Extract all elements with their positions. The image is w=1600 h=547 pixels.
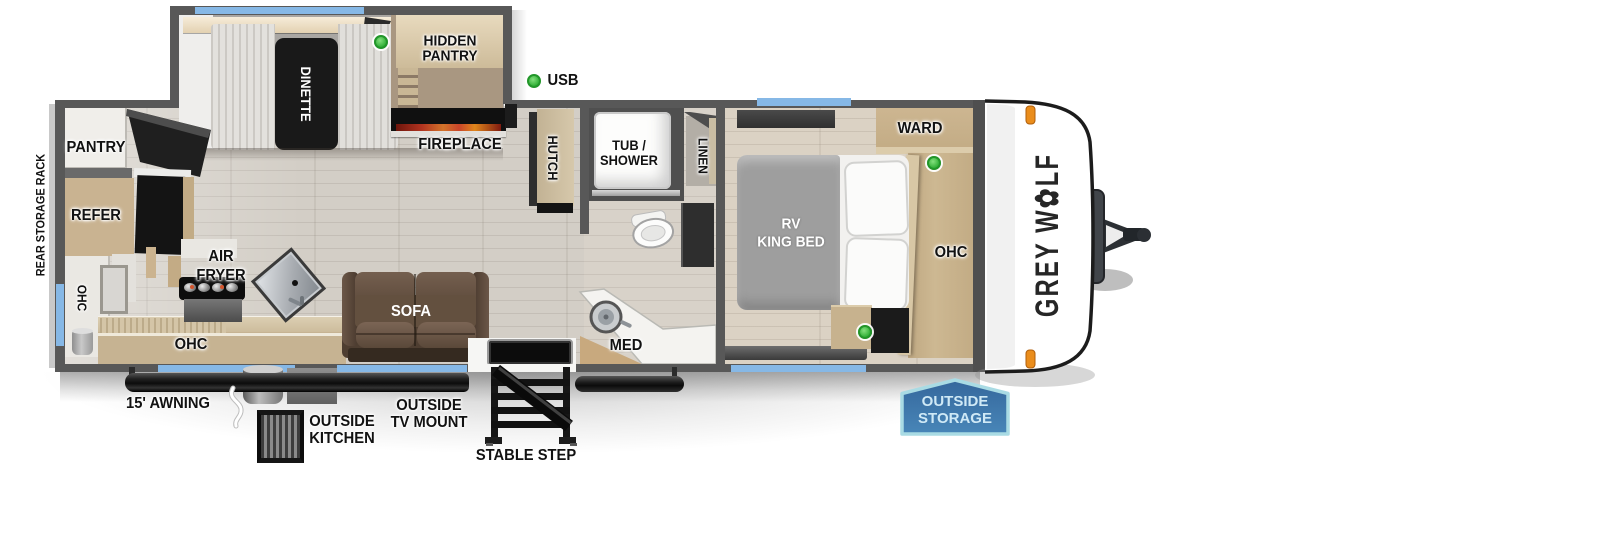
svg-text:OUTSIDE: OUTSIDE [922,393,989,410]
svg-text:STORAGE: STORAGE [918,410,992,427]
